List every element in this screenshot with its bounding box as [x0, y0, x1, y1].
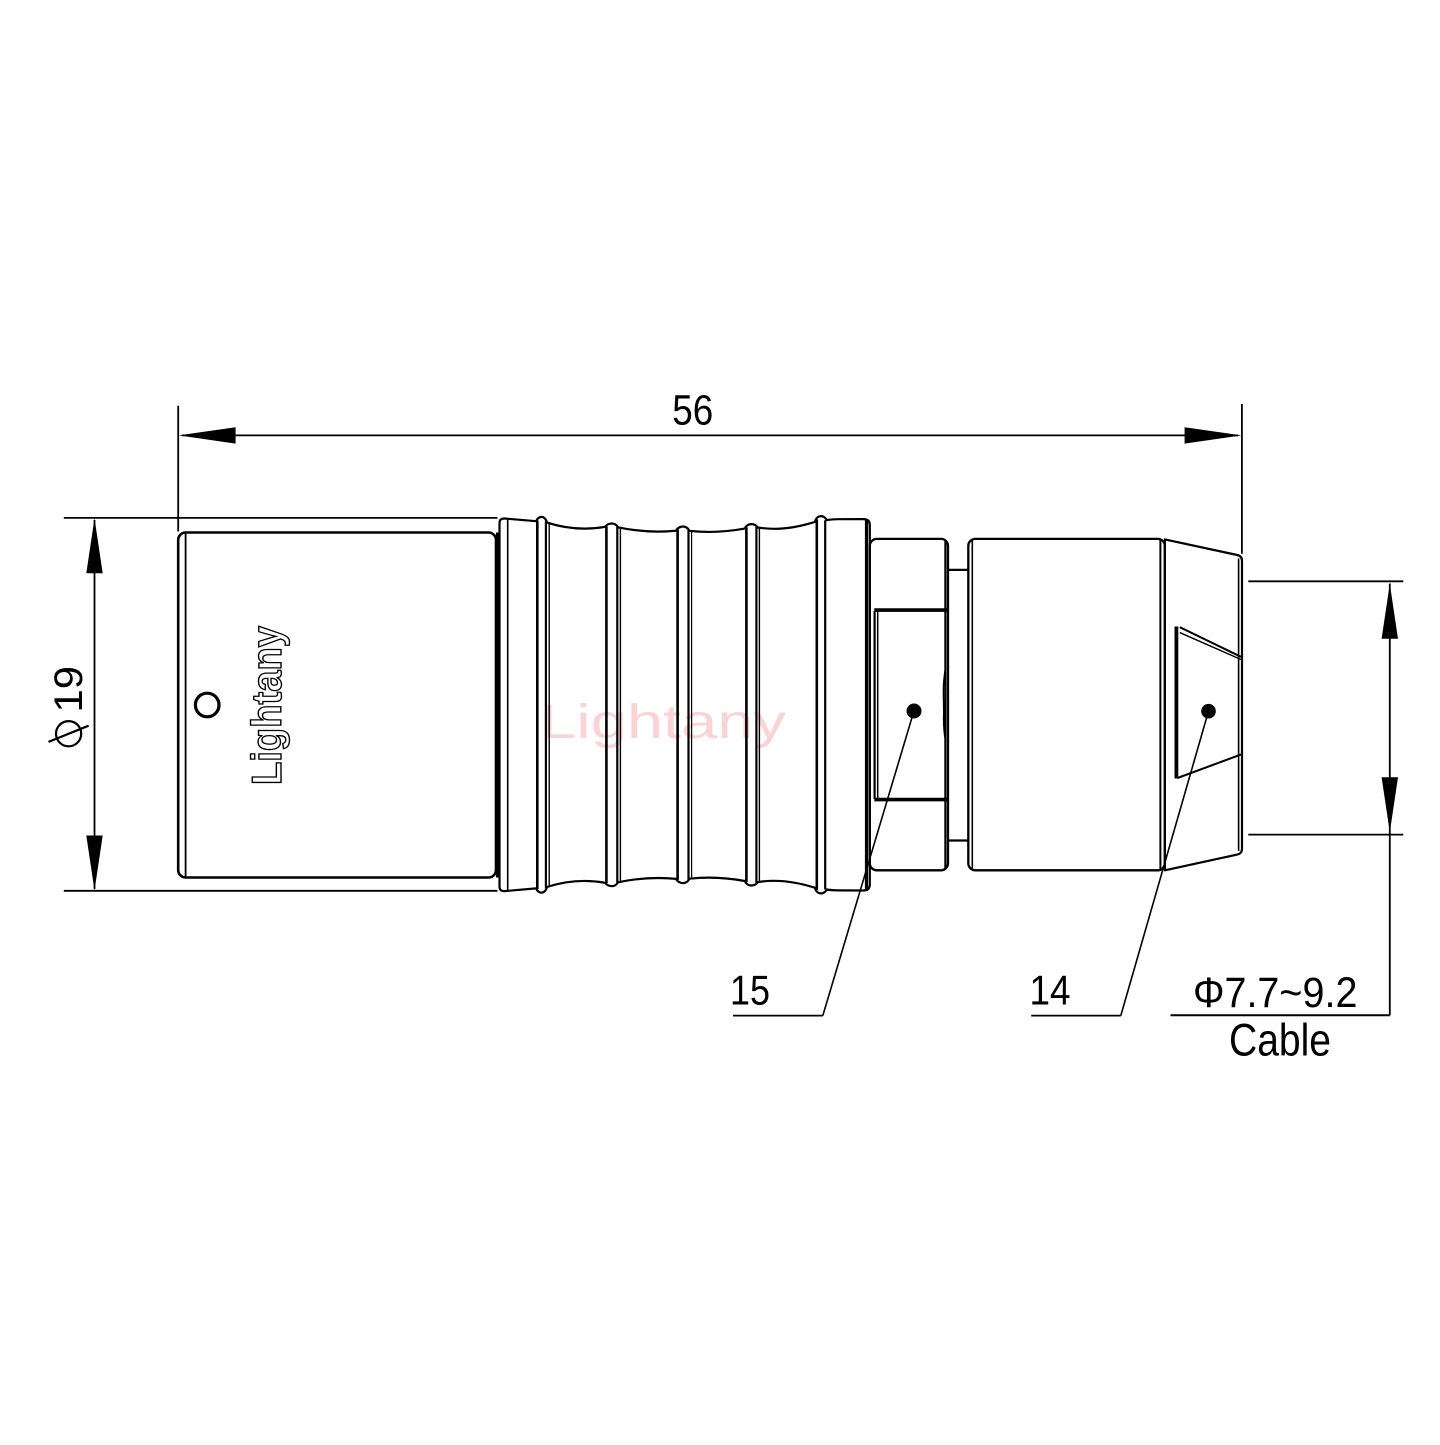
svg-text:15: 15: [730, 967, 770, 1014]
svg-text:Lightany: Lightany: [540, 696, 786, 749]
svg-text:Lightany: Lightany: [243, 625, 290, 785]
svg-text:19: 19: [47, 666, 91, 713]
svg-text:Cable: Cable: [1229, 1015, 1331, 1066]
svg-text:Φ7.7~9.2: Φ7.7~9.2: [1193, 969, 1358, 1017]
svg-text:14: 14: [1030, 967, 1071, 1014]
svg-text:56: 56: [672, 386, 713, 434]
